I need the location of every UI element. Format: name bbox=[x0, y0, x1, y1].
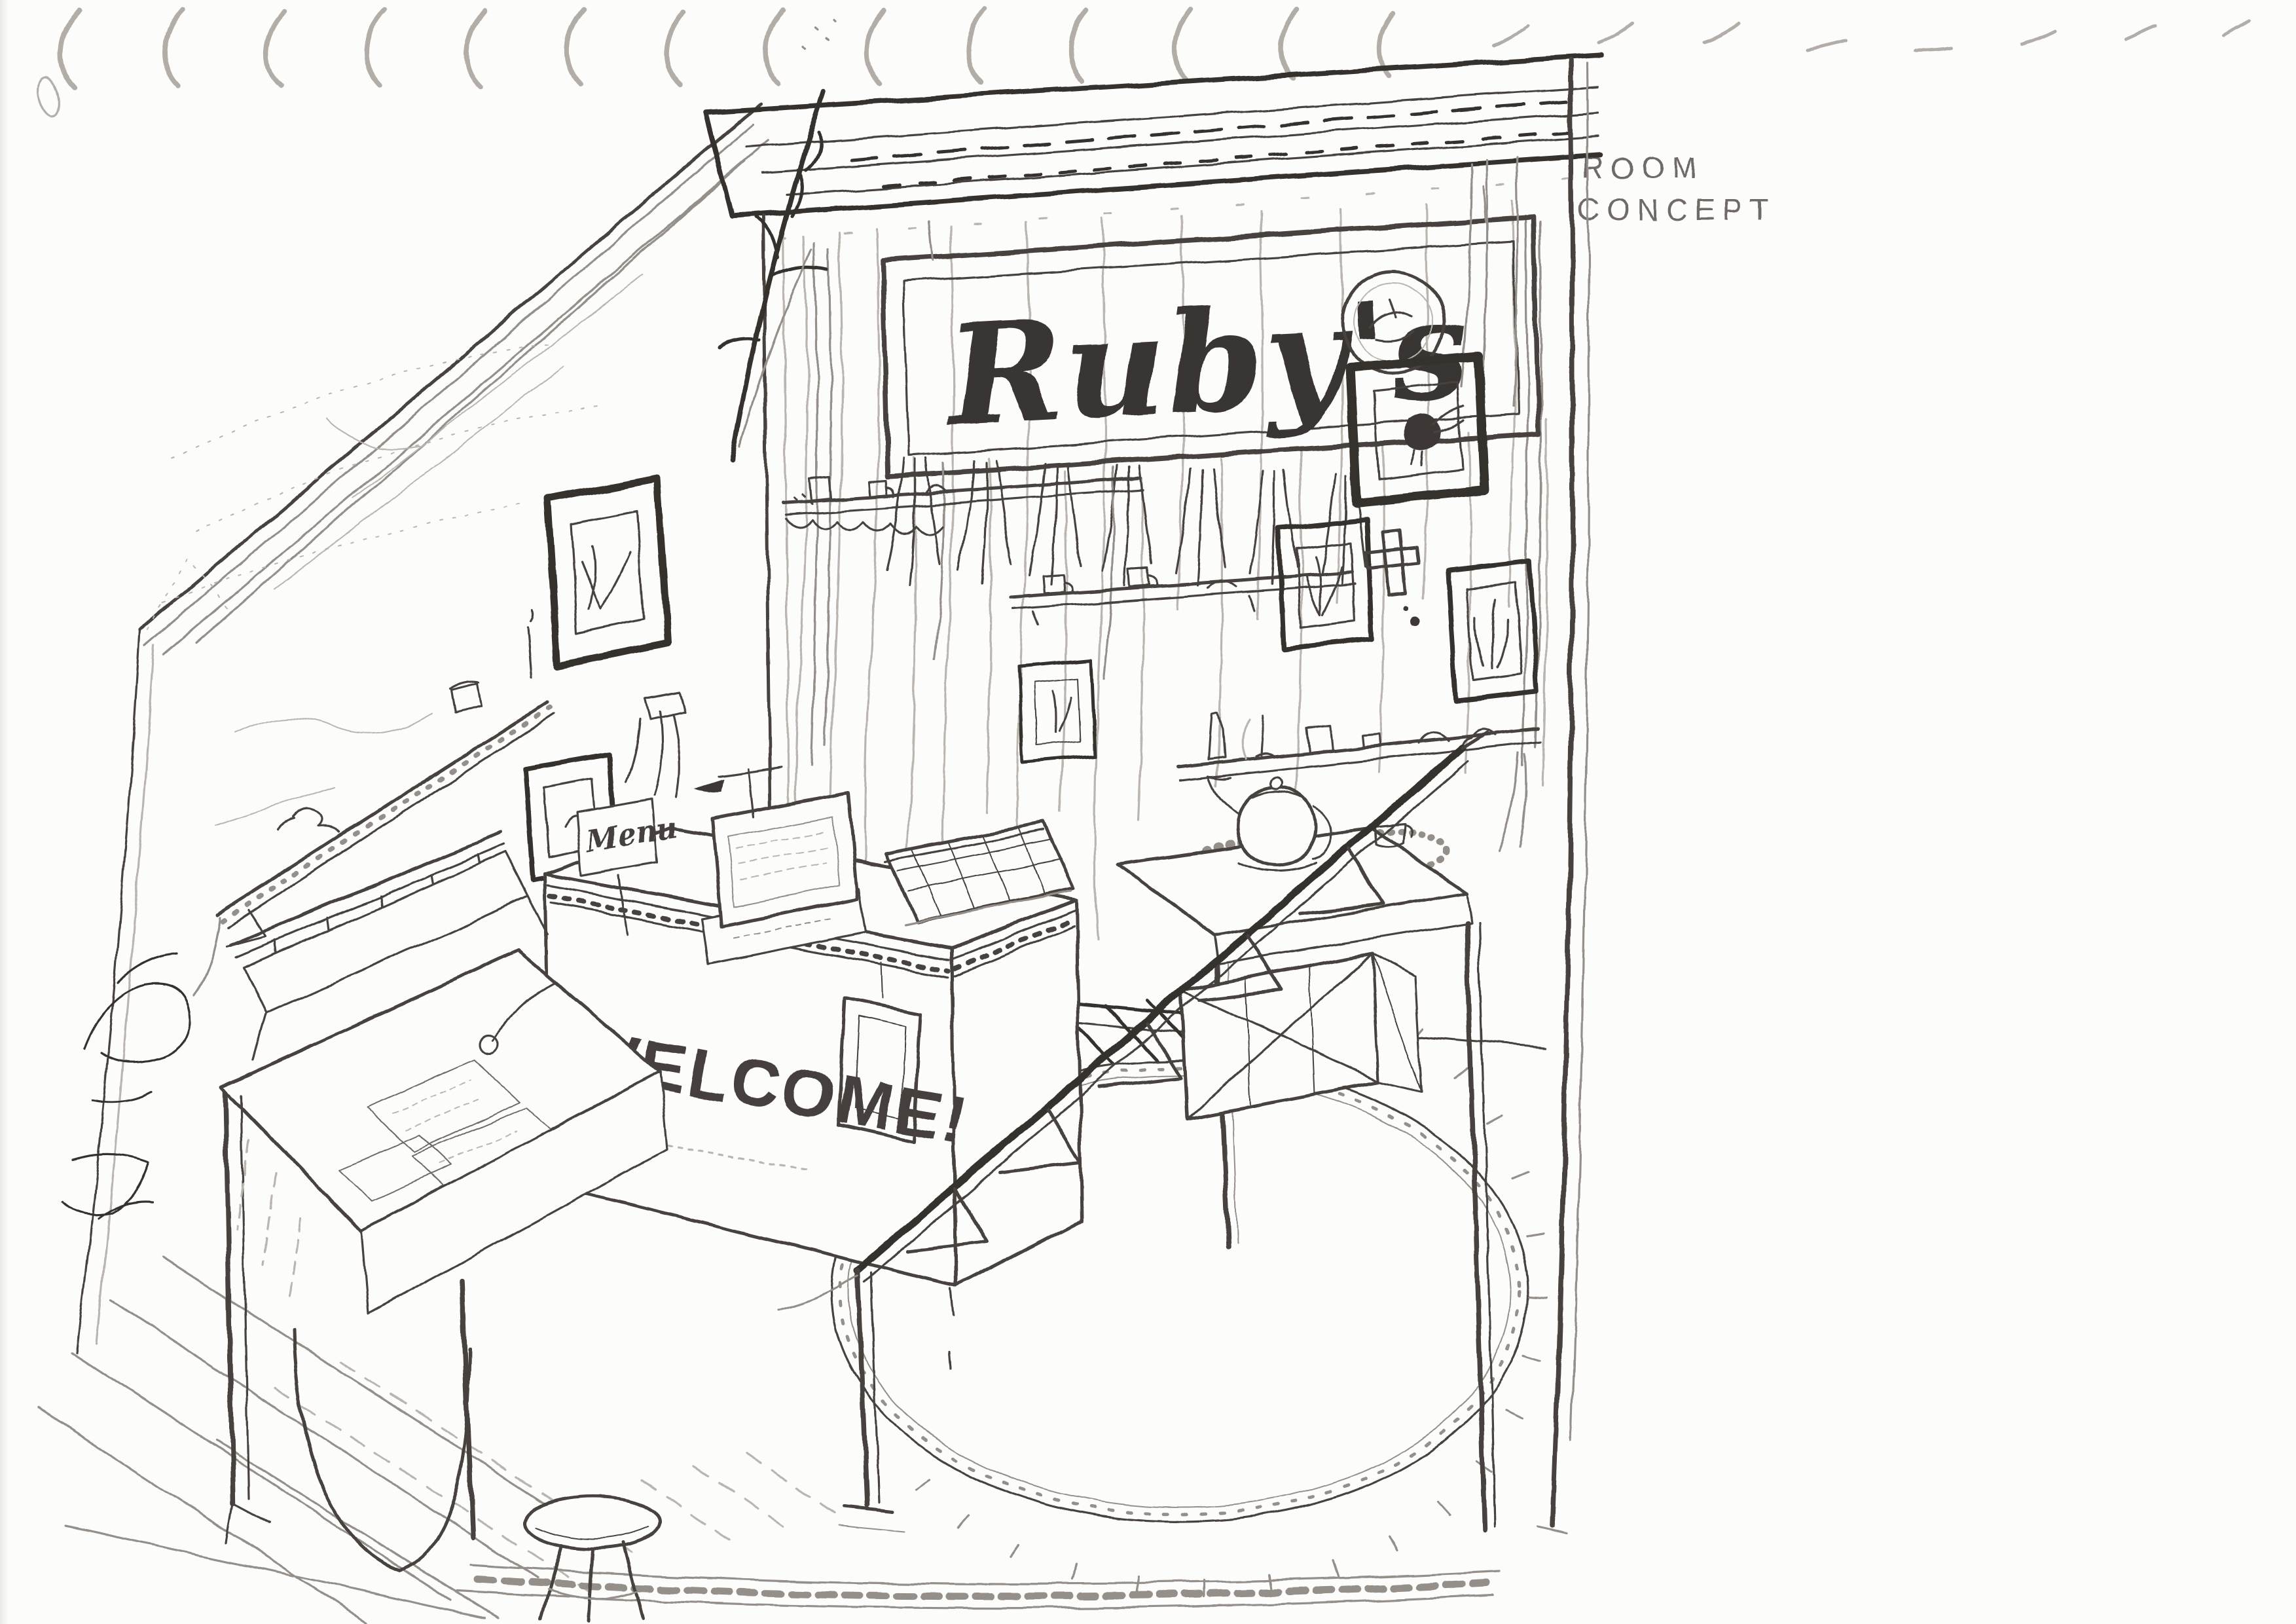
left-wall-left-edge-echo bbox=[97, 646, 155, 1344]
teapot-knob bbox=[1271, 777, 1283, 789]
shelf-drape bbox=[194, 917, 220, 995]
right-post-echo bbox=[1539, 63, 1588, 1534]
foliage-scribble bbox=[63, 953, 191, 1218]
left-wall-left-edge bbox=[77, 630, 140, 1353]
shelf-garland bbox=[786, 519, 943, 534]
wall-texture-lines bbox=[216, 275, 642, 825]
heart-dot bbox=[1411, 616, 1420, 625]
stool-seat bbox=[526, 1496, 659, 1549]
picture-frame-corn-inner bbox=[1467, 584, 1522, 680]
stool bbox=[526, 1496, 659, 1621]
branch-leaves bbox=[720, 132, 828, 348]
desk-kneehole-arch bbox=[293, 1329, 470, 1570]
rail-post-foot bbox=[845, 1507, 893, 1513]
binding-dashes bbox=[1494, 21, 2250, 51]
shelf-plant-droop bbox=[1499, 753, 1527, 851]
rail-post-base-hatch bbox=[839, 1526, 905, 1532]
shelf-bird-figurine bbox=[278, 809, 339, 832]
desk-side-hatch bbox=[237, 1139, 301, 1297]
shelf-jar bbox=[450, 682, 482, 712]
shelf-upper bbox=[783, 478, 1140, 503]
sprig-sketch bbox=[1053, 692, 1071, 733]
picture-frame bbox=[547, 478, 668, 665]
steam-wisp bbox=[1241, 720, 1249, 760]
picture-frame-small-inner bbox=[1034, 678, 1080, 745]
ink-specks bbox=[803, 20, 837, 49]
register-pennant bbox=[695, 779, 724, 792]
left-wall-top-edge-echo bbox=[145, 124, 769, 655]
room-drawing: Ruby's bbox=[39, 55, 1601, 1623]
branch-echo bbox=[740, 249, 812, 445]
corn-sketch bbox=[1476, 600, 1507, 668]
punch-hole-mark bbox=[34, 75, 63, 119]
cash-register bbox=[695, 767, 866, 964]
teapot-body bbox=[1237, 787, 1316, 866]
beam-grain-dashes bbox=[851, 101, 1571, 160]
picture-frame-small bbox=[1019, 660, 1095, 762]
wall-cross bbox=[1366, 530, 1419, 595]
picture-frame-inner bbox=[571, 511, 643, 633]
room-concept-sketch: ROOM CONCEPT bbox=[0, 0, 2296, 1624]
desk-right-leg bbox=[462, 1281, 473, 1538]
scanned-sketch-page: ROOM CONCEPT bbox=[0, 0, 2296, 1624]
right-corner-post bbox=[1553, 60, 1572, 1526]
shelf-upper-edge bbox=[786, 490, 1143, 515]
hanging-plant bbox=[626, 692, 685, 798]
frame-plant-sketch bbox=[581, 546, 630, 609]
annotation-line-2: CONCEPT bbox=[1578, 193, 1776, 227]
desk-left-leg-inner bbox=[241, 1095, 249, 1498]
shelf-candle bbox=[528, 609, 533, 677]
teapot-spout bbox=[1209, 777, 1240, 815]
left-wall-top-edge bbox=[140, 103, 761, 630]
room-concept-label: ROOM CONCEPT bbox=[1578, 151, 1776, 227]
desk-foot bbox=[227, 1504, 270, 1543]
spiral-binding-marks bbox=[34, 9, 2250, 119]
floor-hatch-left bbox=[275, 1362, 838, 1591]
binding-crescents bbox=[60, 9, 1393, 88]
small-dot bbox=[1404, 605, 1409, 610]
